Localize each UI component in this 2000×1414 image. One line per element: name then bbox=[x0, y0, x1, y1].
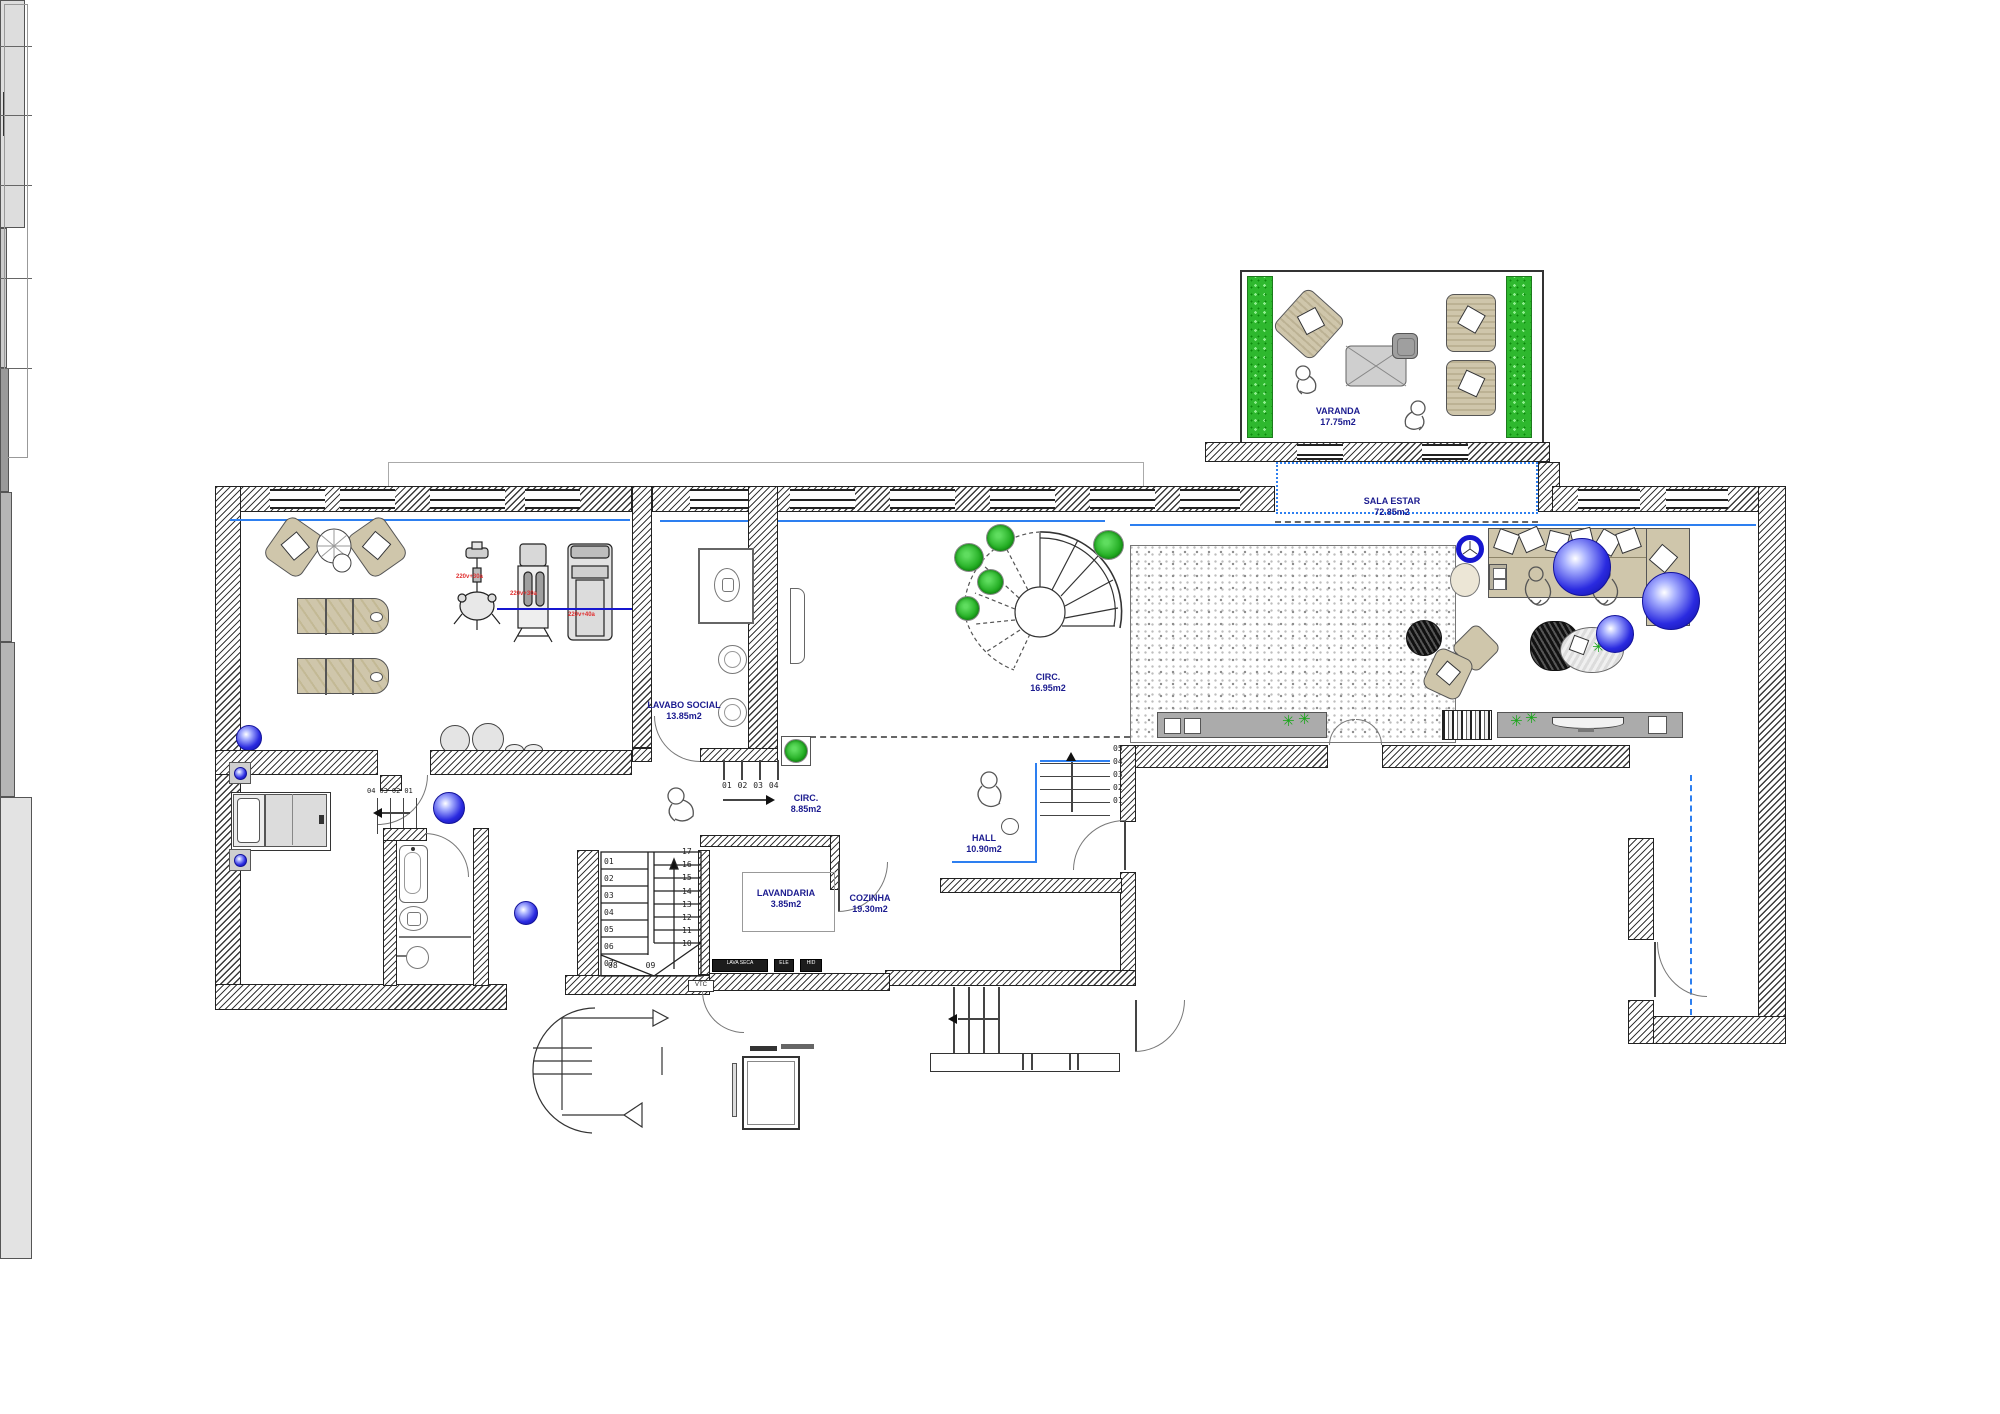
veranda-window-2 bbox=[1422, 444, 1468, 460]
direction-line bbox=[723, 799, 767, 801]
machine-power-label: 220v+30a bbox=[510, 591, 537, 598]
round-side-table bbox=[314, 527, 356, 573]
door-arc bbox=[1657, 942, 1707, 997]
main-stair-bottom-numbers: 0809 bbox=[608, 960, 655, 972]
plant-icon bbox=[977, 569, 1004, 595]
window bbox=[1090, 489, 1155, 509]
room-label-circ-lower: CIRC.8.85m2 bbox=[791, 793, 822, 815]
tall-cabinet bbox=[0, 797, 32, 1259]
pilaster bbox=[0, 492, 12, 642]
bookshelf bbox=[1442, 710, 1492, 740]
light-sphere bbox=[514, 901, 538, 925]
step-line bbox=[968, 987, 970, 1053]
plant-icon: ✳ bbox=[1510, 714, 1523, 729]
plant-icon bbox=[1093, 530, 1124, 560]
plant-icon bbox=[986, 524, 1015, 552]
step-line bbox=[983, 987, 985, 1053]
person-figure bbox=[1398, 398, 1432, 434]
direction-line bbox=[958, 1018, 998, 1020]
floor-plan-canvas: VARANDA17.75m2 SALA ESTAR72.85m2 bbox=[0, 0, 2000, 1414]
planter-left-icon bbox=[1247, 276, 1273, 438]
wall bbox=[748, 486, 778, 762]
east-wall bbox=[1758, 486, 1786, 1044]
lounge-chair bbox=[1446, 360, 1496, 416]
room-label-cozinha: COZINHA19.30m2 bbox=[850, 893, 891, 915]
hall-blue-line bbox=[1035, 763, 1037, 863]
light-sphere bbox=[236, 725, 262, 751]
wall bbox=[577, 850, 599, 980]
door-arc bbox=[425, 833, 469, 877]
wall bbox=[1130, 745, 1328, 768]
counter-line bbox=[399, 936, 471, 938]
person-figure bbox=[1516, 566, 1556, 616]
floor-oval bbox=[1450, 563, 1480, 597]
room-label-circ-upper: CIRC.16.95m2 bbox=[1030, 672, 1066, 694]
door-arc bbox=[654, 716, 700, 762]
light-sphere bbox=[1596, 615, 1634, 653]
step-line bbox=[777, 760, 779, 780]
sink-icon bbox=[406, 946, 429, 969]
arrow-line bbox=[1071, 762, 1073, 812]
person-figure bbox=[972, 770, 1008, 808]
plant-icon bbox=[784, 739, 808, 763]
lavandaria-south-wall bbox=[700, 973, 890, 991]
freestanding-wall bbox=[0, 642, 15, 797]
plant-icon: ✳ bbox=[1298, 712, 1311, 727]
bed bbox=[231, 792, 331, 851]
shower-box bbox=[698, 548, 754, 624]
window bbox=[1578, 489, 1640, 509]
veranda-window-1 bbox=[1297, 444, 1343, 460]
console-box bbox=[1648, 716, 1667, 734]
plant-icon bbox=[954, 543, 984, 572]
toilet-icon bbox=[714, 568, 740, 602]
sink-icon bbox=[718, 645, 747, 674]
step-line bbox=[759, 760, 761, 780]
person-figure bbox=[1290, 362, 1324, 398]
hydraulic-box: HID bbox=[800, 959, 822, 972]
machine-power-label: 220v+30a bbox=[456, 574, 483, 581]
wall bbox=[1382, 745, 1630, 768]
wing-west-wall bbox=[1628, 838, 1654, 940]
direction-arrow bbox=[766, 795, 775, 805]
door-arc bbox=[1135, 1000, 1185, 1052]
tread bbox=[1040, 776, 1110, 777]
step-line bbox=[741, 760, 743, 780]
door-leaf bbox=[1654, 942, 1656, 997]
elevator-panel bbox=[732, 1063, 737, 1117]
kitchen-south-wall bbox=[885, 970, 1136, 986]
planter-right-icon bbox=[1506, 276, 1532, 438]
window bbox=[990, 489, 1055, 509]
faucet-line bbox=[397, 955, 407, 957]
lavandaria-north-wall bbox=[700, 835, 840, 847]
step-line bbox=[723, 760, 725, 780]
massage-table bbox=[297, 598, 389, 634]
gym-guide-line bbox=[497, 608, 632, 610]
tread bbox=[1040, 815, 1110, 816]
wall bbox=[700, 748, 778, 762]
electrical-box: ELE bbox=[774, 959, 794, 972]
ceiling-fan-icon bbox=[1456, 535, 1484, 563]
hall-stair-numbers: 0504030201 bbox=[1113, 742, 1123, 807]
person-figure bbox=[660, 784, 700, 824]
console-table bbox=[790, 588, 805, 664]
hall-south-wall bbox=[940, 878, 1122, 893]
wall bbox=[1120, 872, 1136, 972]
bedroom-step-numbers: 04030201 bbox=[367, 787, 413, 796]
wall bbox=[473, 828, 489, 986]
room-label-sala-estar: SALA ESTAR72.85m2 bbox=[1364, 496, 1421, 518]
room-label-varanda: VARANDA17.75m2 bbox=[1316, 406, 1360, 428]
window bbox=[430, 489, 505, 509]
window bbox=[690, 489, 755, 509]
veranda-side-table bbox=[1392, 333, 1418, 359]
circ-boundary-dashed bbox=[810, 736, 1130, 738]
spotlight-icon bbox=[229, 849, 251, 871]
wall bbox=[632, 748, 652, 762]
tread bbox=[1040, 763, 1110, 764]
up-arrow bbox=[1066, 752, 1076, 761]
light-sphere bbox=[1642, 572, 1700, 630]
track-bar bbox=[750, 1046, 777, 1051]
plant-icon bbox=[955, 596, 980, 621]
roof-overhang-outline bbox=[388, 462, 1144, 489]
washer-dryer-box: LAVA SECA bbox=[712, 959, 768, 972]
plant-icon: ✳ bbox=[1525, 711, 1538, 726]
spotlight-icon bbox=[229, 762, 251, 784]
tread bbox=[1040, 802, 1110, 803]
west-wall bbox=[215, 486, 241, 1010]
wall bbox=[430, 750, 632, 775]
hall-blue-line bbox=[952, 861, 1037, 863]
southwest-wall bbox=[215, 984, 507, 1010]
light-sphere bbox=[1553, 538, 1611, 596]
direction-line bbox=[382, 812, 410, 814]
toilet-icon bbox=[399, 906, 428, 931]
entry-stair-diagram bbox=[520, 995, 730, 1145]
bathtub-icon bbox=[399, 845, 428, 903]
step-line bbox=[998, 987, 1000, 1053]
wall bbox=[383, 828, 427, 841]
elevator-shaft bbox=[742, 1056, 800, 1130]
window bbox=[270, 489, 325, 509]
window bbox=[790, 489, 855, 509]
tread bbox=[1040, 789, 1110, 790]
veranda-south-wall bbox=[1205, 442, 1550, 462]
machine-power-label: 220v+40a bbox=[568, 612, 595, 619]
lounge-chair bbox=[1446, 294, 1496, 352]
room-label-lavandaria: LAVANDARIA3.85m2 bbox=[757, 888, 815, 910]
direction-arrow bbox=[373, 808, 382, 818]
room-label-lavabo: LAVABO SOCIAL13.85m2 bbox=[647, 700, 720, 722]
floor-scribble bbox=[1001, 818, 1019, 835]
entry-step-numbers: 01020304 bbox=[722, 781, 779, 791]
window bbox=[890, 489, 955, 509]
window bbox=[1666, 489, 1728, 509]
wing-west-wall bbox=[1628, 1000, 1654, 1044]
direction-arrow bbox=[948, 1014, 957, 1024]
window bbox=[525, 489, 580, 509]
massage-table bbox=[297, 658, 389, 694]
landing-platform bbox=[930, 1053, 1120, 1072]
main-stair-left-numbers: 01020304050607 bbox=[604, 853, 614, 972]
door-arc bbox=[1073, 820, 1125, 870]
room-label-hall: HALL10.90m2 bbox=[966, 833, 1002, 855]
sala-boundary-dashed bbox=[1275, 521, 1538, 523]
light-sphere bbox=[433, 792, 465, 824]
sill-line bbox=[1130, 524, 1756, 526]
track-bar bbox=[781, 1044, 814, 1049]
sofa-side-table bbox=[1489, 564, 1507, 590]
main-stair-right-numbers: 1716151413121110 bbox=[682, 845, 692, 951]
wall bbox=[383, 828, 397, 986]
window bbox=[340, 489, 395, 509]
plant-icon: ✳ bbox=[1282, 714, 1295, 729]
tv-stand bbox=[1578, 728, 1594, 732]
window bbox=[1180, 489, 1240, 509]
sink-icon bbox=[718, 698, 747, 727]
